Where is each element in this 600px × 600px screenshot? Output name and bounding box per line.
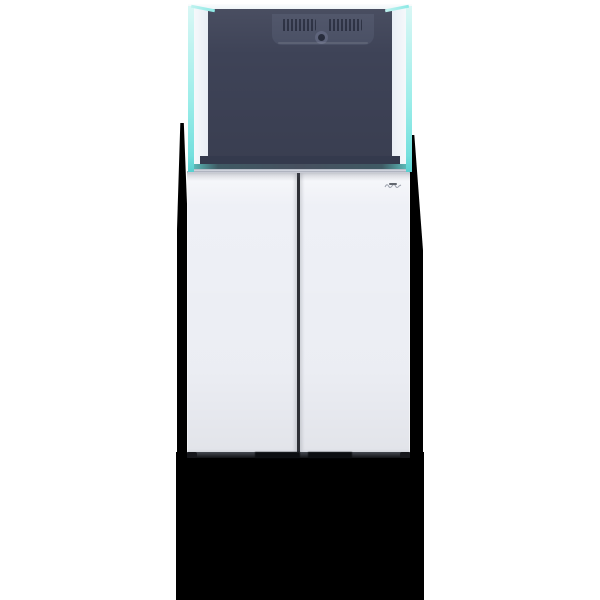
overflow-hole-core (318, 34, 325, 41)
cabinet-door-left (187, 173, 297, 452)
drop-shadow-bottom (176, 452, 424, 600)
cabinet-base (187, 452, 410, 458)
tank-side-glass-left (194, 8, 208, 168)
overflow-box (272, 14, 374, 45)
cabinet-door-right (300, 173, 410, 452)
glass-edge-right (406, 6, 412, 172)
brand-logo (384, 175, 402, 187)
cabinet-foot-left (187, 452, 197, 458)
tank-lower-band (200, 156, 400, 164)
overflow-hole-icon (315, 31, 328, 44)
product-image-description: Rimless glass aquarium with rear overflo… (0, 0, 1, 1)
brand-logo-subtext (389, 183, 397, 185)
product-photo: Rimless glass aquarium with rear overflo… (0, 0, 600, 600)
cabinet-base-shadow-segment (255, 452, 300, 458)
overflow-grille-left-icon (282, 19, 316, 31)
drop-shadow-right (409, 135, 423, 455)
tank-interior-back-panel (208, 9, 392, 160)
overflow-grille-right-icon (328, 19, 362, 31)
aquarium-tank (188, 4, 412, 171)
cabinet-door-seam (297, 173, 300, 452)
cabinet-base-shadow-segment (308, 452, 352, 458)
cabinet-stand (187, 171, 410, 458)
glass-edge-left (188, 6, 194, 172)
under-tank-shadow (187, 171, 410, 181)
tank-side-glass-right (392, 8, 406, 168)
tank-bottom-highlight (192, 169, 408, 171)
cabinet-foot-right (400, 452, 410, 458)
